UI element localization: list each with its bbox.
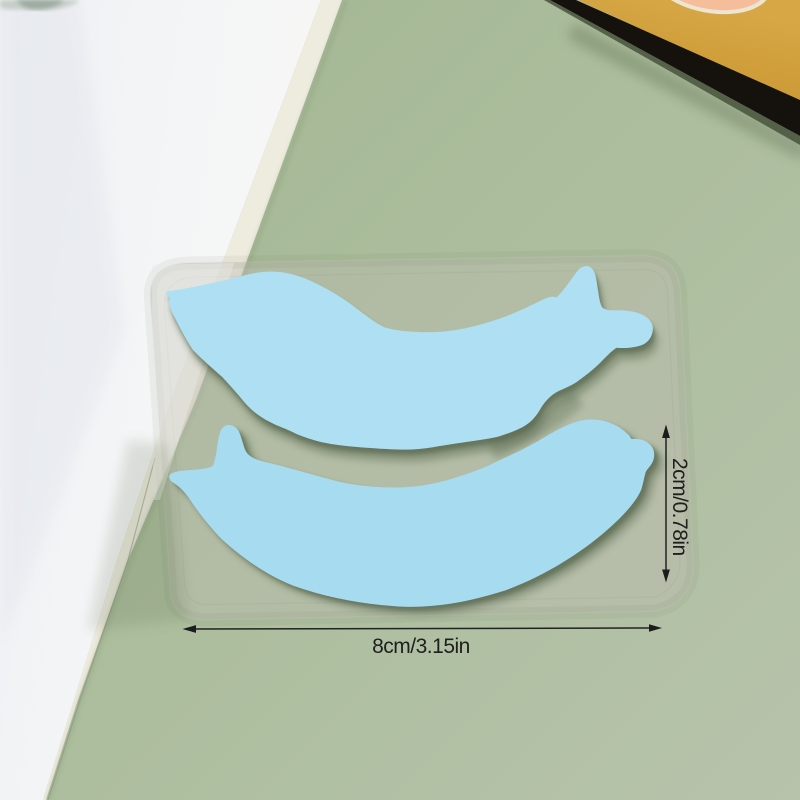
svg-text:8cm/3.15in: 8cm/3.15in (372, 635, 470, 658)
svg-text:2cm/0.78in: 2cm/0.78in (668, 458, 691, 556)
